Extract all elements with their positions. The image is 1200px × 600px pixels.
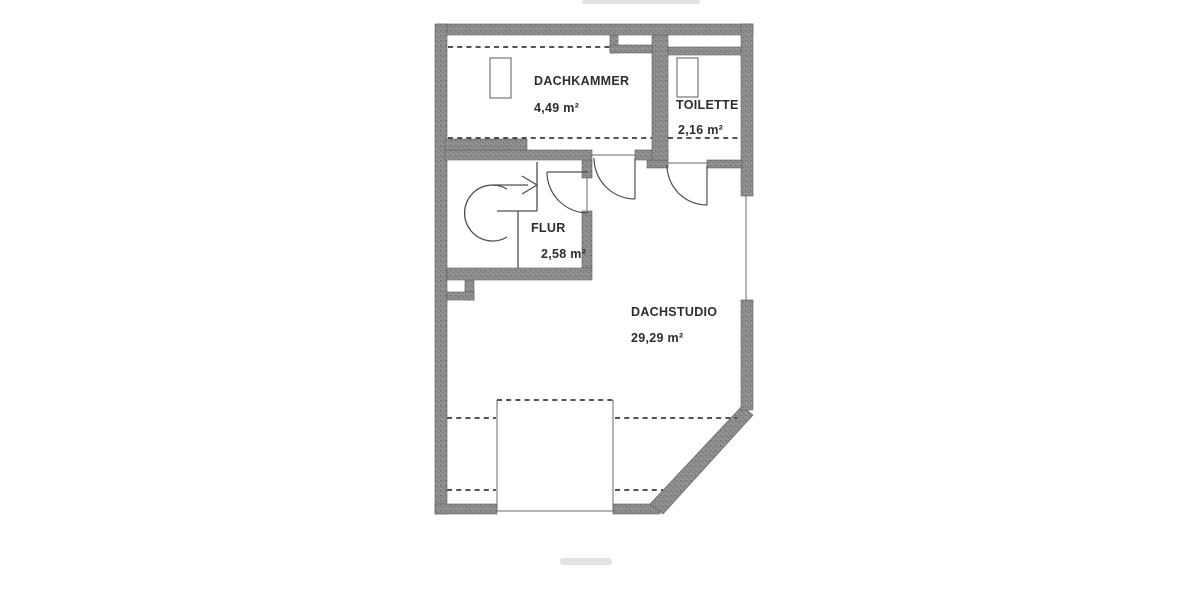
wall-exterior-top: [437, 24, 753, 35]
wall-exterior-right-lower: [741, 300, 753, 410]
dachkammer-door-swing-arc: [594, 158, 635, 199]
wall-flur-top: [445, 150, 592, 160]
toilette-door-swing-arc: [667, 165, 707, 205]
wall-flur-bottom: [447, 268, 592, 280]
floor-plan-drawing: DACHKAMMER 4,49 m² TOILETTE 2,16 m² FLUR…: [0, 0, 1200, 600]
wall-partition-dachkammer-toilette: [652, 35, 668, 160]
wall-exterior-left: [435, 24, 447, 514]
wall-exterior-diagonal: [650, 406, 753, 514]
wall-flur-door-pillar: [582, 160, 592, 178]
room-label-dachstudio: DACHSTUDIO: [631, 305, 717, 319]
staircase-group: [465, 162, 537, 268]
roof-window-dachkammer: [490, 58, 511, 98]
wall-exterior-right-upper: [741, 24, 753, 196]
room-label-toilette: TOILETTE: [676, 98, 739, 112]
room-labels-group: DACHKAMMER 4,49 m² TOILETTE 2,16 m² FLUR…: [531, 74, 739, 345]
roof-window-toilette: [677, 58, 698, 97]
room-area-toilette: 2,16 m²: [678, 123, 723, 137]
wall-toilette-knee-band: [668, 47, 741, 55]
wall-dachkammer-door-step: [647, 160, 668, 168]
wall-chimney-stub-horizontal: [447, 292, 474, 300]
room-area-flur: 2,58 m²: [541, 247, 586, 261]
room-area-dachstudio: 29,29 m²: [631, 331, 683, 345]
wall-dachkammer-bottom-thick: [445, 139, 527, 150]
wall-duct-niche-horizontal: [610, 45, 652, 53]
floor-plan-page: DACHKAMMER 4,49 m² TOILETTE 2,16 m² FLUR…: [0, 0, 1200, 600]
scan-artifact-bottom: [560, 558, 612, 565]
room-area-dachkammer: 4,49 m²: [534, 101, 579, 115]
room-label-flur: FLUR: [531, 221, 566, 235]
room-label-dachkammer: DACHKAMMER: [534, 74, 629, 88]
wall-flur-right: [582, 211, 592, 270]
wall-toilette-bottom: [707, 160, 742, 168]
scan-artifact-top: [582, 0, 700, 4]
doors-group: [547, 158, 707, 213]
wall-exterior-bottom-left: [435, 504, 497, 514]
stair-winder-arc: [465, 185, 507, 241]
